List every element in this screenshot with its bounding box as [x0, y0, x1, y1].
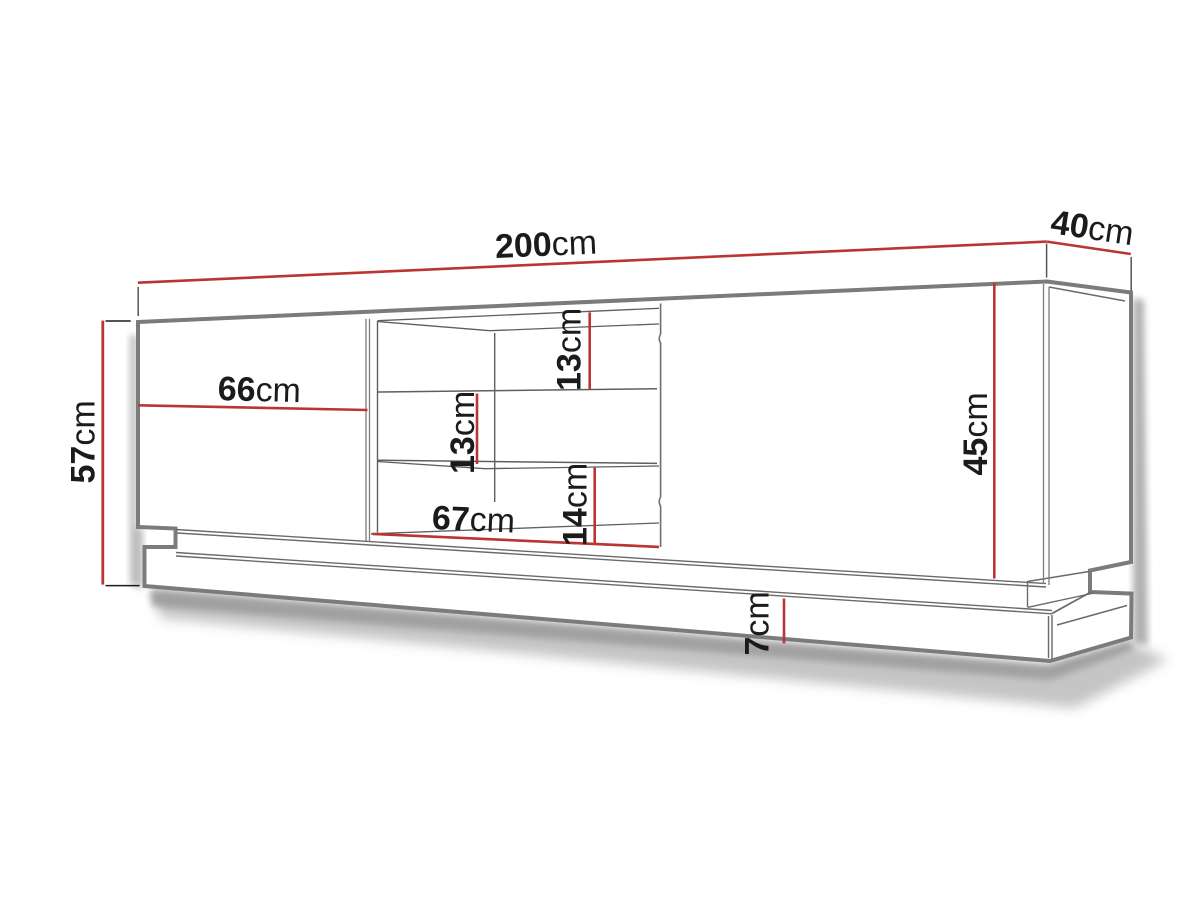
svg-text:57cm: 57cm	[65, 400, 103, 483]
svg-text:7cm: 7cm	[739, 591, 777, 655]
svg-text:66cm: 66cm	[217, 370, 301, 410]
svg-text:14cm: 14cm	[557, 463, 595, 546]
svg-text:13cm: 13cm	[551, 308, 589, 391]
svg-text:67cm: 67cm	[431, 499, 516, 541]
svg-text:13cm: 13cm	[444, 391, 482, 474]
svg-text:200cm: 200cm	[494, 224, 598, 266]
svg-text:45cm: 45cm	[957, 392, 995, 475]
